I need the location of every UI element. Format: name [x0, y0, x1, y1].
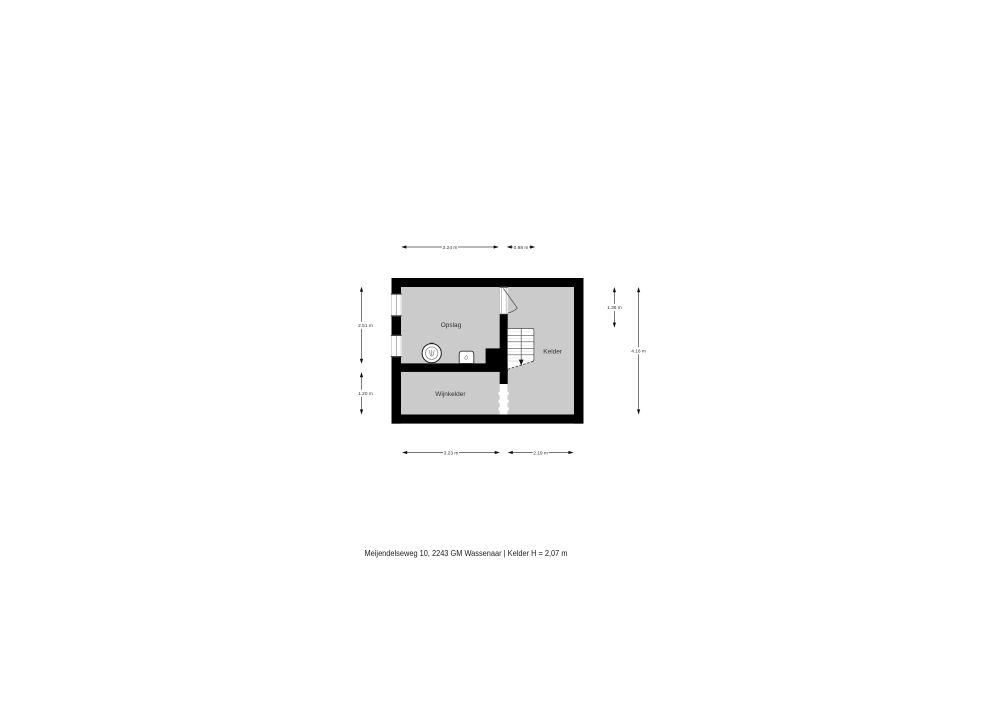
svg-text:1.20 m: 1.20 m — [358, 391, 373, 397]
svg-text:Meijendelseweg 10, 2243 GM Was: Meijendelseweg 10, 2243 GM Wassenaar | K… — [365, 548, 568, 558]
svg-text:Kelder: Kelder — [543, 349, 563, 356]
svg-text:4.16 m: 4.16 m — [631, 349, 646, 355]
svg-text:2.51 m: 2.51 m — [358, 323, 373, 329]
svg-text:2.19 m: 2.19 m — [533, 450, 548, 456]
svg-text:3.23 m: 3.23 m — [444, 450, 459, 456]
svg-text:1.36 m: 1.36 m — [607, 305, 622, 311]
svg-text:3.24 m: 3.24 m — [443, 245, 458, 251]
svg-text:Opslag: Opslag — [441, 322, 462, 329]
svg-text:Wijnkelder: Wijnkelder — [435, 391, 466, 398]
svg-text:0.98 m: 0.98 m — [514, 245, 529, 251]
